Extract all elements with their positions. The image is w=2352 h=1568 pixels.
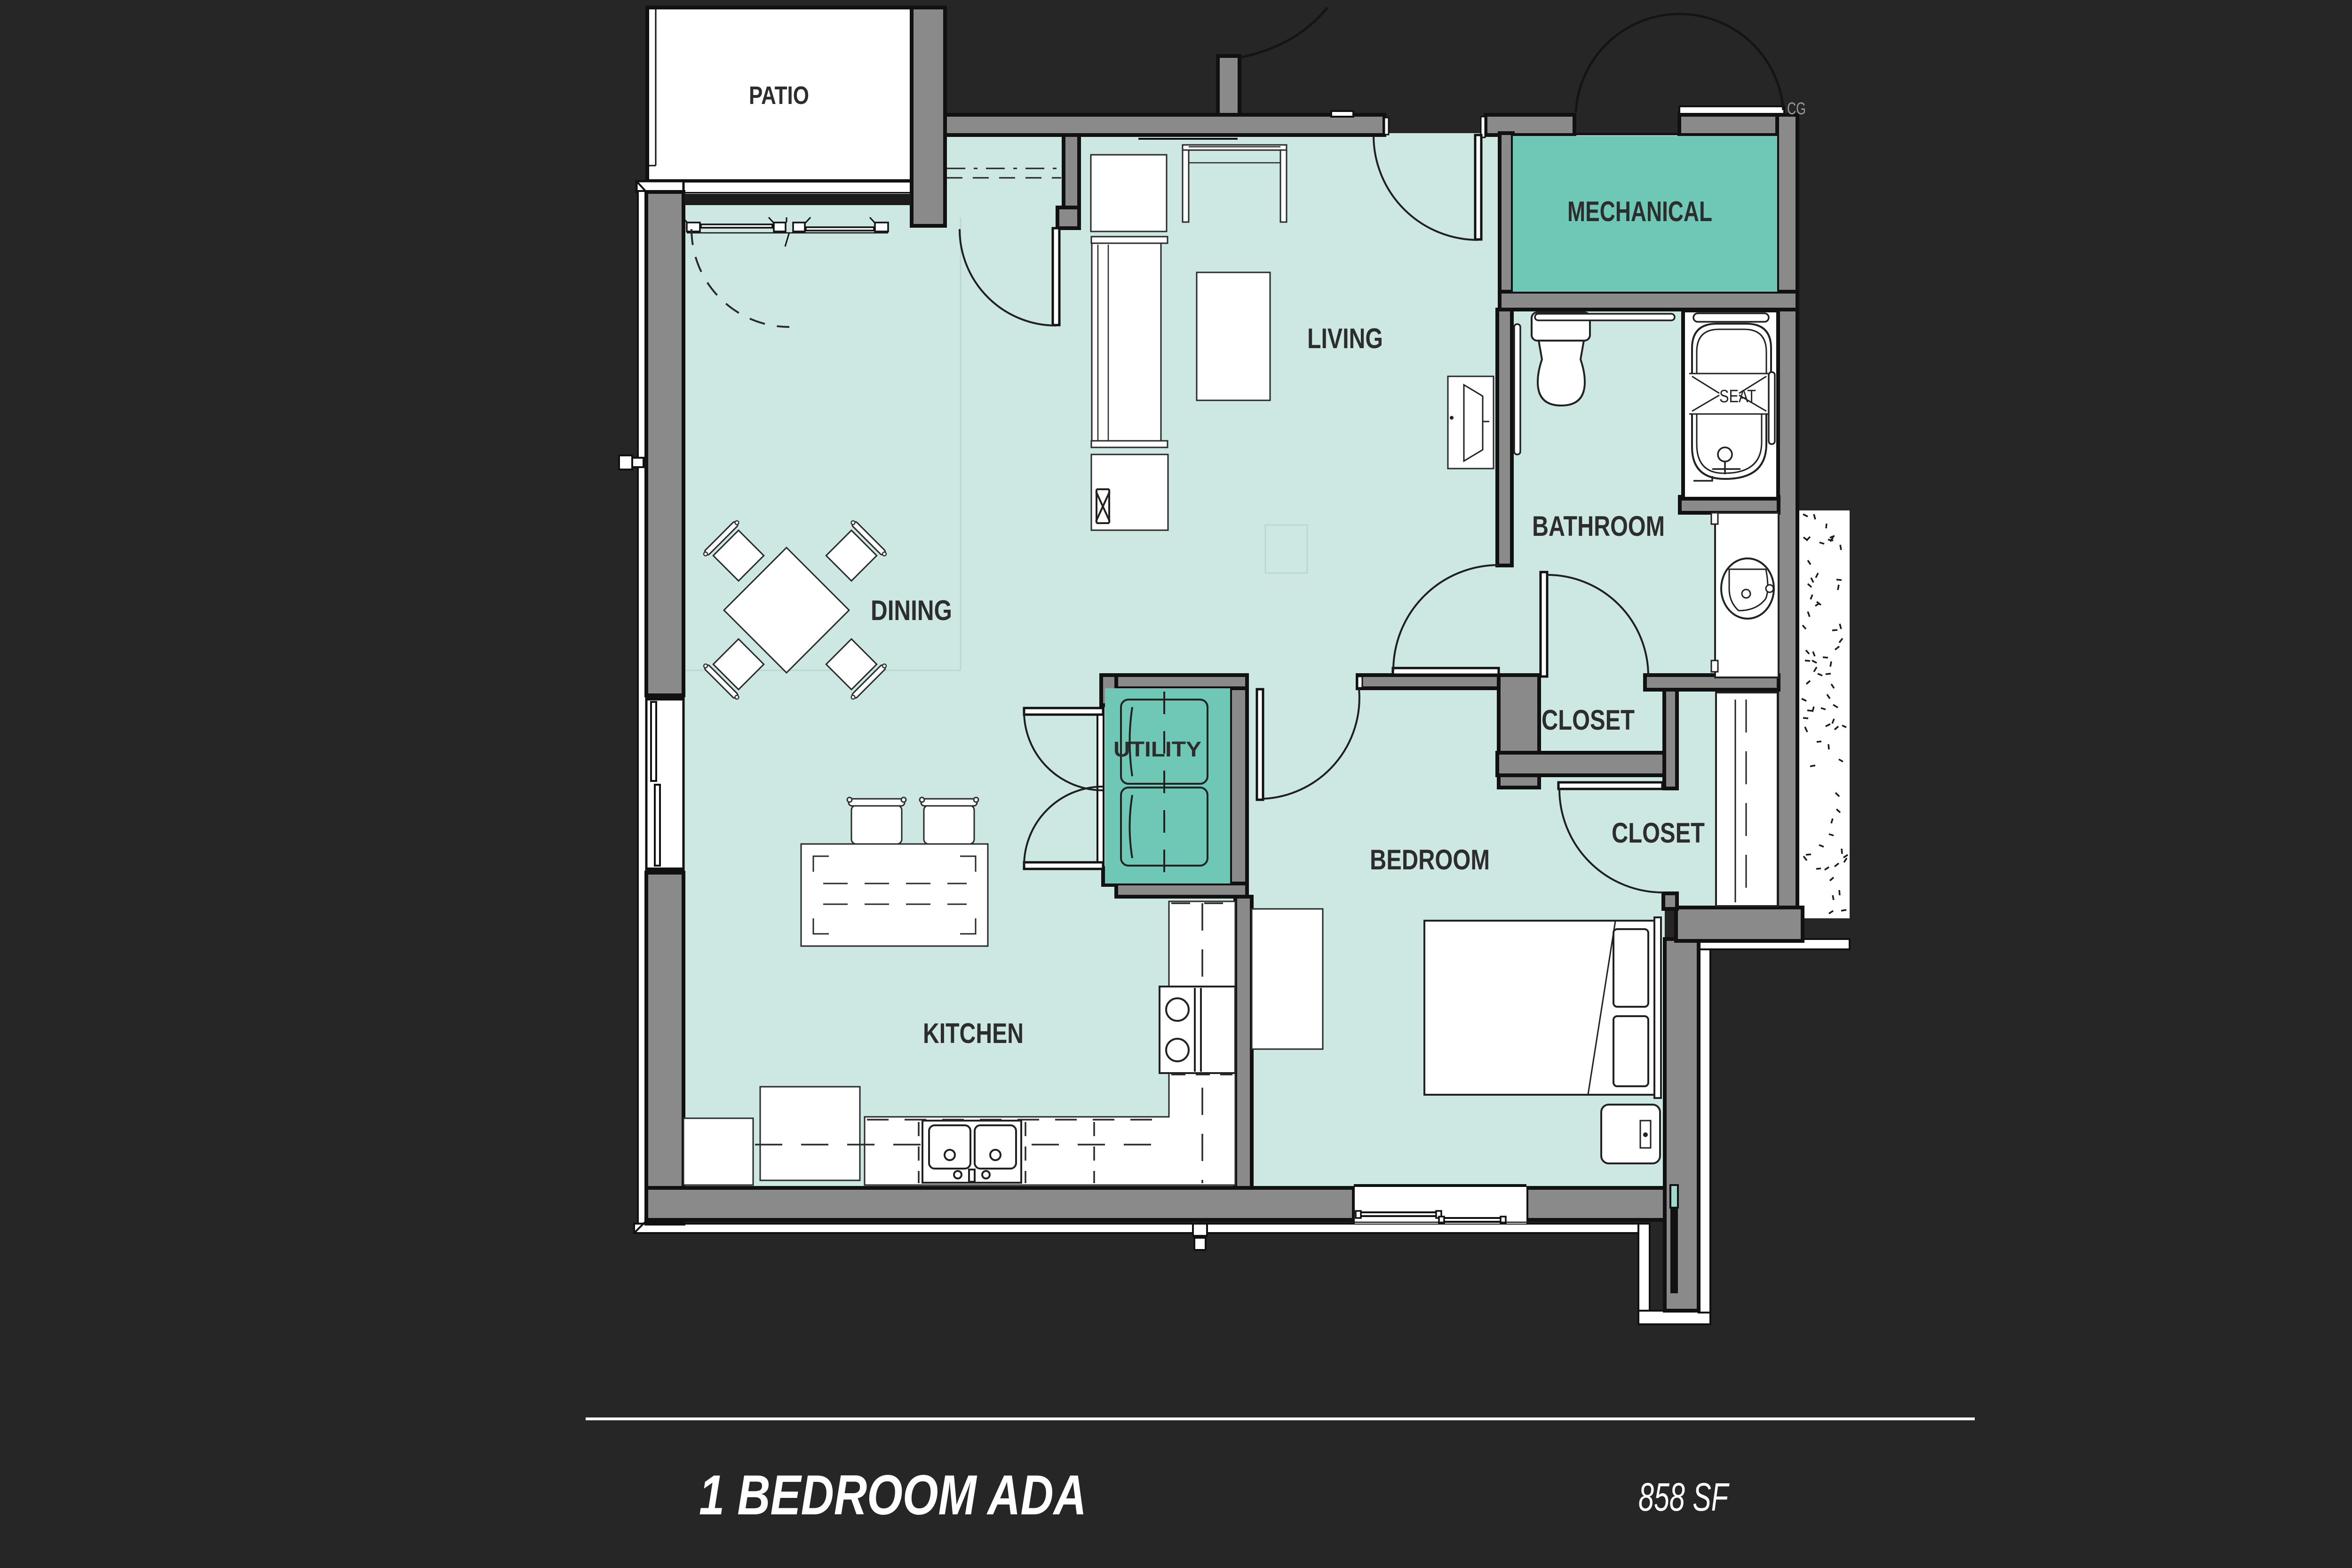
svg-text:BEDROOM: BEDROOM bbox=[1370, 844, 1490, 876]
svg-text:DINING: DINING bbox=[871, 595, 952, 626]
svg-text:LIVING: LIVING bbox=[1307, 323, 1383, 354]
svg-text:858 SF: 858 SF bbox=[1638, 1475, 1730, 1519]
svg-text:SEAT: SEAT bbox=[1719, 387, 1756, 406]
svg-text:UTILITY: UTILITY bbox=[1113, 737, 1201, 761]
svg-text:1 BEDROOM ADA: 1 BEDROOM ADA bbox=[699, 1464, 1087, 1527]
svg-text:CLOSET: CLOSET bbox=[1612, 817, 1705, 849]
svg-text:KITCHEN: KITCHEN bbox=[923, 1018, 1024, 1049]
svg-text:BATHROOM: BATHROOM bbox=[1532, 510, 1665, 542]
svg-text:MECHANICAL: MECHANICAL bbox=[1567, 196, 1712, 227]
svg-text:CLOSET: CLOSET bbox=[1542, 704, 1635, 736]
svg-text:PATIO: PATIO bbox=[749, 81, 809, 110]
svg-text:CG: CG bbox=[1787, 99, 1806, 118]
